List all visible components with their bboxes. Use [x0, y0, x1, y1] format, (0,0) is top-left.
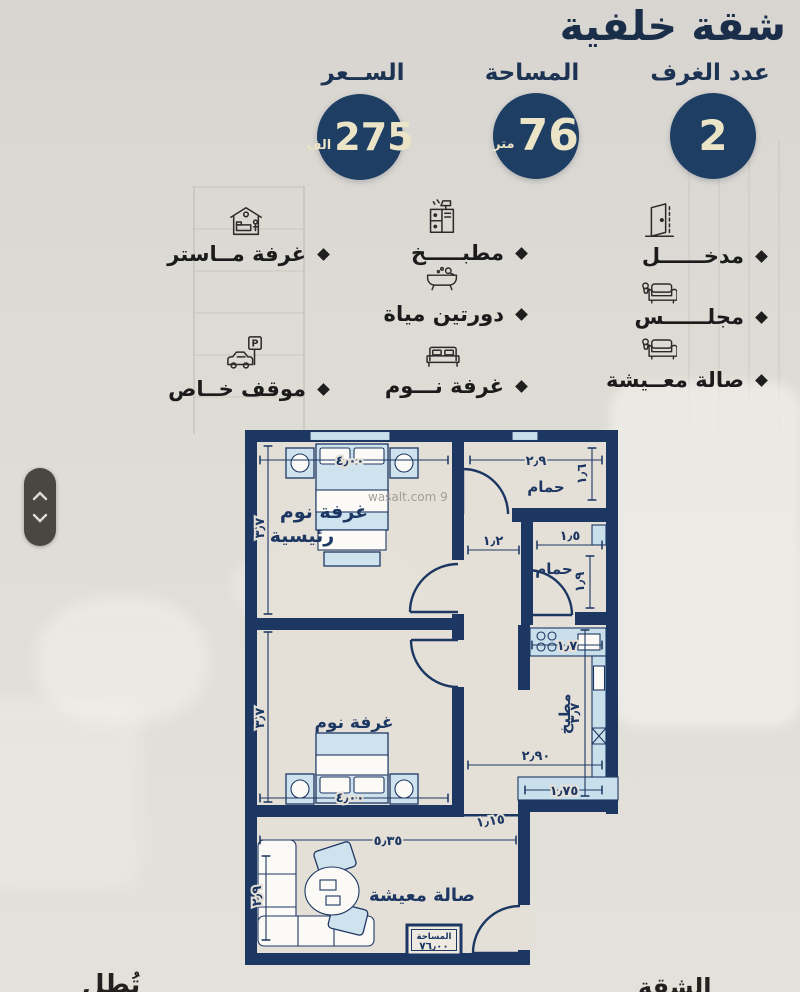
bullet-diamond — [755, 374, 768, 387]
price-value: 275 — [334, 118, 413, 156]
bottom-text-fragment-right: الشقة — [638, 973, 712, 992]
bullet-diamond — [515, 247, 528, 260]
sofa-icon — [641, 278, 677, 308]
rooms-label: عدد الغرف — [650, 60, 770, 86]
dim-bath1-top: ٢٫٩ — [526, 454, 547, 469]
feature-label: صالة معــيشة — [606, 368, 744, 392]
dim-hall: ١٫٢ — [483, 534, 504, 549]
feature-living-room: صالة معــيشة — [606, 368, 766, 392]
dim-bath2-right: ١٫٩ — [573, 572, 588, 593]
area-value: 76 — [518, 114, 579, 158]
price-label: الســعر — [303, 60, 423, 86]
background-pouf — [36, 596, 208, 724]
dim-kitchen-top: ١٫٧ — [557, 639, 578, 654]
area-box-value: ٧٦٫٠٠ — [419, 941, 449, 953]
dim-corridor: ٢٫٩٠ — [522, 749, 551, 764]
background-couch-cushions — [622, 398, 792, 493]
feature-label: مدخــــــل — [642, 244, 744, 268]
feature-bedroom: غرفة نـــوم — [385, 374, 526, 398]
dim-bath1-right: ١٫٦ — [575, 464, 590, 485]
parking-sign-letter: P — [252, 338, 259, 349]
dim-master-top: ٤٫٠٠ — [336, 454, 365, 469]
bullet-diamond — [515, 308, 528, 321]
feature-private-parking: موقف خــاص — [168, 377, 328, 401]
room-label-bedroom2: غرفة نوم — [314, 713, 393, 733]
chevron-up-icon — [32, 491, 48, 501]
bullet-diamond — [317, 248, 330, 261]
scroll-control — [24, 468, 56, 546]
parking-icon: P — [224, 334, 266, 374]
price-unit: الف — [306, 138, 331, 153]
floor-plan: ٤٫٠٠ ٣٫٧ ٢٫٩ ١٫٦ ١٫٢ ١٫٥ ١٫٩ ١٫٧ ٣٫٧ ٢٫٩… — [240, 428, 620, 968]
area-box: المساحة ٧٦٫٠٠ — [407, 925, 461, 955]
dim-counter: ١٫٧٥ — [550, 784, 579, 799]
feature-label: غرفة نـــوم — [385, 374, 504, 398]
feature-entrance: مدخــــــل — [642, 244, 766, 268]
dim-bath2-top: ١٫٥ — [560, 529, 581, 544]
feature-majlis: مجلــــــس — [635, 305, 766, 329]
dim-living-left: ٢٫٩ — [250, 886, 265, 907]
bullet-diamond — [515, 380, 528, 393]
area-unit: متر — [493, 137, 514, 152]
kitchen-icon — [422, 198, 460, 236]
bullet-diamond — [755, 311, 768, 324]
sofa-icon — [641, 334, 677, 364]
feature-label: دورتين مياة — [384, 302, 504, 326]
rooms-value: 2 — [698, 115, 727, 157]
bed-icon — [423, 338, 463, 368]
dim-bed2-bottom: ٤٫٠٠ — [336, 791, 365, 806]
room-label-living: صالة معيشة — [369, 885, 475, 906]
feature-two-bathrooms: دورتين مياة — [384, 302, 526, 326]
dim-master-left: ٣٫٧ — [253, 518, 268, 539]
feature-label: مطبـــــخ — [411, 241, 504, 265]
feature-master-room: غرفة مــاستر — [167, 242, 328, 266]
feature-label: مجلــــــس — [635, 305, 744, 329]
room-label-bathroom2: حمام — [535, 560, 573, 578]
room-label-kitchen: مطبخ — [556, 694, 574, 735]
room-label-master-1: غرفة نوم — [280, 501, 368, 523]
listing-infographic: شقة خلفية الســعر المساحة عدد الغرف 275 … — [0, 0, 800, 992]
room-label-master-2: رئيسية — [270, 525, 334, 547]
bullet-diamond — [755, 250, 768, 263]
master-bed-icon — [226, 204, 266, 240]
area-label: المساحة — [472, 60, 592, 86]
background-sofa-corner — [0, 698, 140, 888]
feature-kitchen: مطبـــــخ — [411, 241, 526, 265]
bathtub-icon — [424, 260, 460, 294]
scroll-down-button[interactable] — [31, 511, 49, 525]
rooms-badge: 2 — [670, 93, 756, 179]
room-label-bathroom1: حمام — [527, 478, 565, 496]
door-icon — [640, 200, 678, 242]
scroll-up-button[interactable] — [31, 489, 49, 503]
area-badge: 76 متر — [493, 93, 579, 179]
feature-label: غرفة مــاستر — [167, 242, 306, 266]
bottom-text-fragment-left: تُطل — [82, 970, 140, 992]
dim-bed2-left: ٣٫٧ — [253, 708, 268, 729]
price-badge: 275 الف — [317, 94, 403, 180]
feature-label: موقف خــاص — [168, 377, 306, 401]
bullet-diamond — [317, 383, 330, 396]
dim-living-top: ٥٫٣٥ — [374, 834, 403, 849]
watermark: wasalt.com 9 — [368, 490, 448, 504]
chevron-down-icon — [32, 513, 48, 523]
background-couch — [610, 382, 800, 727]
page-title: شقة خلفية — [560, 2, 786, 50]
